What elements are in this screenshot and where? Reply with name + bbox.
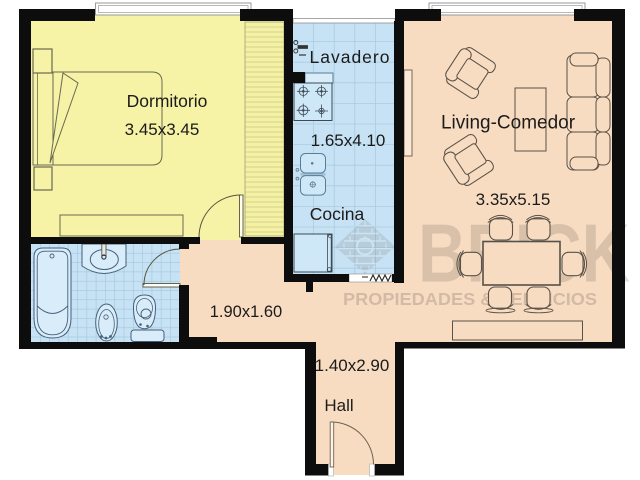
svg-text:1.40x2.90: 1.40x2.90 — [315, 356, 390, 375]
svg-text:3.35x5.15: 3.35x5.15 — [476, 190, 551, 209]
svg-text:Living-Comedor: Living-Comedor — [441, 113, 576, 134]
svg-text:Dormitorio: Dormitorio — [127, 91, 208, 111]
svg-text:Cocina: Cocina — [310, 204, 365, 224]
svg-text:Hall: Hall — [324, 396, 353, 415]
svg-text:PROPIEDADES & SERVICIOS: PROPIEDADES & SERVICIOS — [343, 289, 597, 309]
svg-text:1.90x1.60: 1.90x1.60 — [210, 303, 282, 321]
svg-text:1.65x4.10: 1.65x4.10 — [311, 131, 386, 150]
svg-text:3.45x3.45: 3.45x3.45 — [125, 120, 200, 139]
svg-text:Lavadero: Lavadero — [310, 47, 391, 67]
